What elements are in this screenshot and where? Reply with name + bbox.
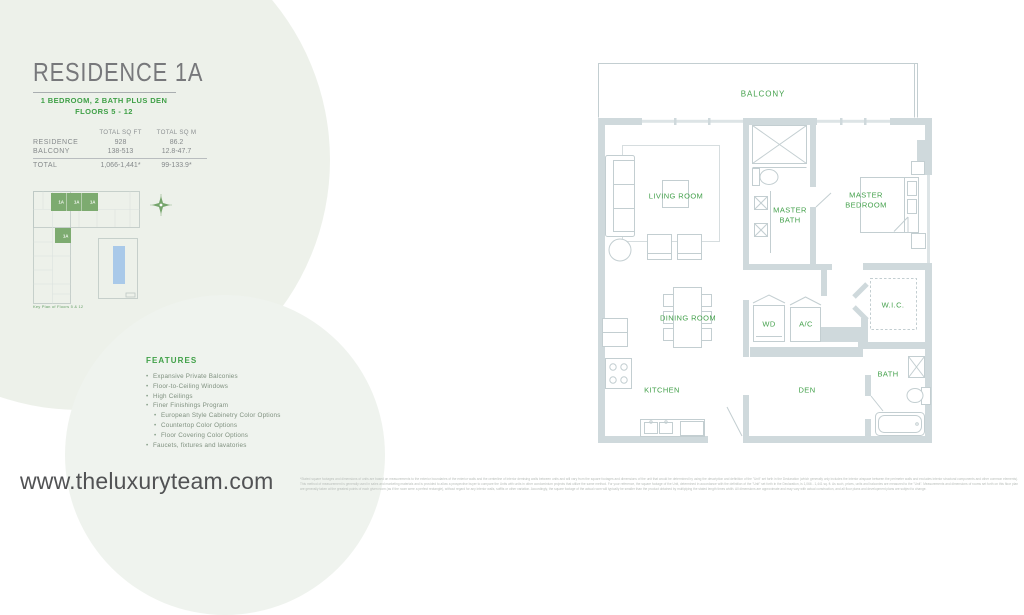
- unit-1a-label: 1A: [90, 200, 95, 205]
- room-label-master-bedroom: MASTER BEDROOM: [835, 191, 897, 210]
- unit-subtitle: 1 BEDROOM, 2 BATH PLUS DEN FLOORS 5 - 12: [32, 95, 176, 117]
- total-sqft: 1,066-1,441*: [95, 162, 146, 169]
- wd-ac-closets: [753, 295, 821, 342]
- features-section: FEATURES Expansive Private Balconies Flo…: [146, 356, 331, 450]
- room-label-ac: A/C: [799, 319, 813, 329]
- brochure-page: { "header": { "title": "RESIDENCE 1A", "…: [0, 0, 1024, 511]
- row-label: BALCONY: [33, 148, 95, 155]
- col-header-sqm: TOTAL SQ M: [146, 129, 207, 136]
- key-plan-drawing: 1A 1A 1A 1A: [30, 186, 145, 309]
- pool: [113, 246, 125, 284]
- key-plan-caption: Key Plan of Floors 5 & 12: [33, 304, 83, 309]
- feature-item: Finer Finishings Program: [146, 401, 331, 411]
- table-row-residence: RESIDENCE 928 86.2: [33, 138, 207, 147]
- key-plan-svg: 1A 1A 1A 1A: [30, 186, 145, 304]
- features-heading: FEATURES: [146, 356, 331, 365]
- room-label-wd: WD: [762, 319, 775, 329]
- residence-sqm: 86.2: [146, 139, 207, 146]
- floor-plan-svg: [588, 50, 938, 450]
- feature-subitem: European Style Cabinetry Color Options: [154, 411, 331, 421]
- feature-subitem: Floor Covering Color Options: [154, 431, 331, 441]
- room-label-living-room: LIVING ROOM: [649, 191, 703, 201]
- legal-disclaimer: *Stated square footages and dimensions o…: [300, 477, 1018, 492]
- unit-type: 1 BEDROOM, 2 BATH PLUS DEN: [32, 95, 176, 106]
- total-sqm: 99-133.9*: [146, 162, 207, 169]
- room-label-balcony: BALCONY: [741, 89, 786, 99]
- table-row-total: TOTAL 1,066-1,441* 99-133.9*: [33, 161, 207, 170]
- unit-floors: FLOORS 5 - 12: [32, 106, 176, 117]
- room-label-dining-room: DINING ROOM: [660, 313, 716, 323]
- compass-icon: [148, 192, 174, 223]
- col-header-sqft: TOTAL SQ FT: [95, 129, 146, 136]
- room-label-den: DEN: [798, 385, 815, 395]
- balcony-sqft: 138-513: [95, 148, 146, 155]
- key-plan-highlighted-units: 1A 1A 1A 1A: [51, 193, 98, 243]
- room-label-wic: W.I.C.: [882, 300, 905, 310]
- website-url: www.theluxuryteam.com: [20, 468, 273, 495]
- residence-sqft: 928: [95, 139, 146, 146]
- key-plan-pool-deck: [99, 239, 138, 299]
- room-label-kitchen: KITCHEN: [644, 385, 680, 395]
- room-label-master-bath: MASTER BATH: [768, 206, 812, 225]
- row-label: RESIDENCE: [33, 139, 95, 146]
- page-title: RESIDENCE 1A: [33, 57, 203, 88]
- floor-plan: BALCONY LIVING ROOM MASTER BATH MASTER B…: [588, 50, 938, 450]
- feature-subitem: Countertop Color Options: [154, 421, 331, 431]
- area-table-header-row: TOTAL SQ FT TOTAL SQ M: [33, 127, 207, 138]
- room-label-bath: BATH: [877, 369, 898, 379]
- feature-item: Faucets, fixtures and lavatories: [146, 441, 331, 451]
- feature-item: Floor-to-Ceiling Windows: [146, 382, 331, 392]
- unit-1a-label: 1A: [59, 200, 64, 205]
- elevator-shaft: [753, 126, 807, 168]
- unit-1a-label: 1A: [63, 234, 68, 239]
- living-room-furniture: [606, 146, 720, 262]
- feature-item: Expansive Private Balconies: [146, 372, 331, 382]
- area-table: TOTAL SQ FT TOTAL SQ M RESIDENCE 928 86.…: [33, 127, 207, 170]
- decorative-circle-bottom: [65, 295, 385, 615]
- balcony-sqm: 12.8-47.7: [146, 148, 207, 155]
- title-divider: [33, 92, 176, 93]
- unit-1a-label: 1A: [74, 200, 79, 205]
- table-row-balcony: BALCONY 138-513 12.8-47.7: [33, 147, 207, 156]
- table-divider: [33, 158, 207, 159]
- feature-item: High Ceilings: [146, 392, 331, 402]
- row-label: TOTAL: [33, 162, 95, 169]
